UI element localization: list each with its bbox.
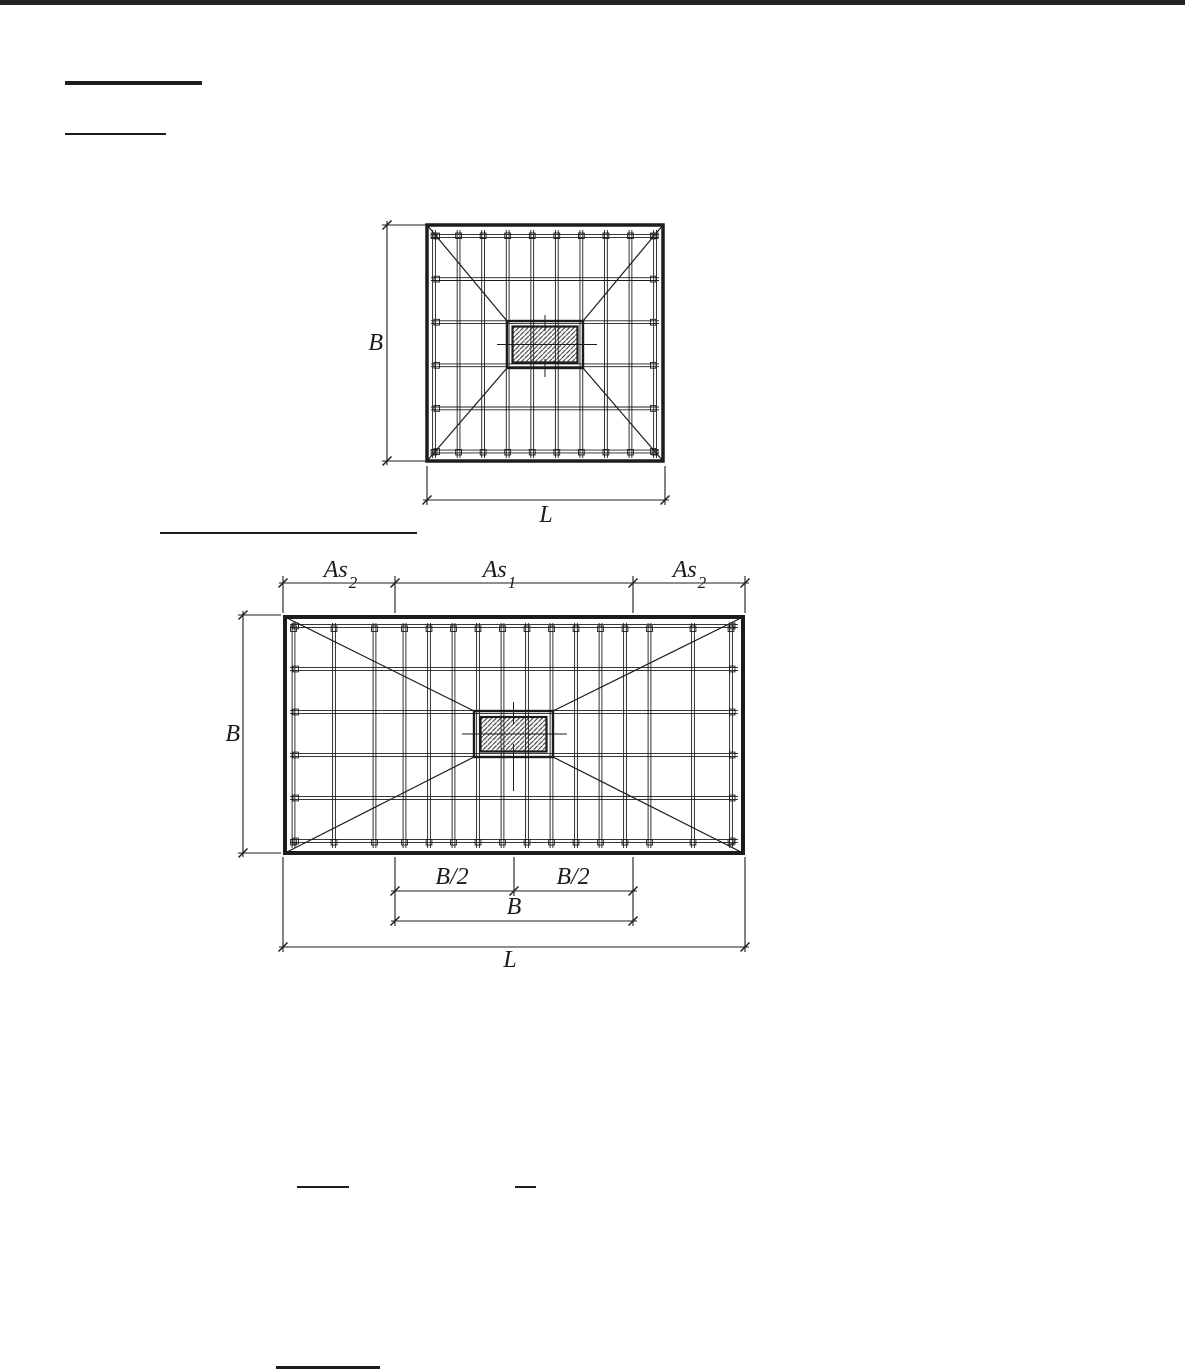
rebar-hook: [690, 626, 696, 632]
rebar-hook: [500, 626, 506, 632]
rebar-hook: [434, 406, 440, 412]
rebar-hook: [451, 626, 457, 632]
rebar-hook: [293, 709, 299, 715]
rebar-hook: [549, 626, 555, 632]
as2-right-sub: 2: [698, 573, 707, 592]
rebar-hook: [434, 276, 440, 282]
fig2-diagonal: [285, 617, 474, 711]
footing-plan-drawing-layer: [0, 0, 1185, 1370]
fig2-dim-label-as2-left: As2: [324, 558, 357, 582]
rebar-hook: [573, 626, 579, 632]
fig2-dim-label-b-half-left: B/2: [435, 865, 468, 889]
fig1-dim-label-l: L: [539, 503, 552, 527]
rebar-hook: [622, 626, 628, 632]
fig1-diagonal: [427, 225, 507, 321]
fig2-dim-label-as2-right: As2: [673, 558, 706, 582]
fig2-dim-label-b-left: B: [225, 722, 240, 746]
as2-left-sub: 2: [349, 573, 358, 592]
document-page: B L As2 As1 As2 B B/2 B/2 B L: [0, 0, 1185, 1370]
as1-sub: 1: [508, 573, 517, 592]
fig1-diagonal: [583, 368, 663, 461]
rebar-hook: [434, 362, 440, 368]
fig2-dim-label-l-bottom: L: [503, 948, 516, 972]
rebar-hook: [434, 319, 440, 325]
rebar-hook: [372, 626, 378, 632]
fig1-diagonal: [583, 225, 663, 321]
as1-base: As: [483, 557, 507, 583]
fig2-dim-label-as1: As1: [483, 558, 516, 582]
rebar-hook: [331, 626, 337, 632]
fig1-dim-label-b: B: [368, 331, 383, 355]
rebar-hook: [426, 626, 432, 632]
fig2-dim-label-b-half-right: B/2: [556, 865, 589, 889]
fig1-diagonal: [427, 368, 507, 461]
as2-right-base: As: [673, 557, 697, 583]
rebar-hook: [293, 752, 299, 758]
fig2-dim-label-b-bottom: B: [507, 895, 522, 919]
rebar-hook: [647, 626, 653, 632]
rebar-hook: [293, 795, 299, 801]
rebar-hook: [524, 626, 530, 632]
fig2-diagonal: [285, 757, 474, 853]
rebar-hook: [475, 626, 481, 632]
rebar-hook: [293, 666, 299, 672]
as2-left-base: As: [324, 557, 348, 583]
rebar-hook: [293, 838, 299, 844]
rebar-hook: [598, 626, 604, 632]
rebar-hook: [402, 626, 408, 632]
